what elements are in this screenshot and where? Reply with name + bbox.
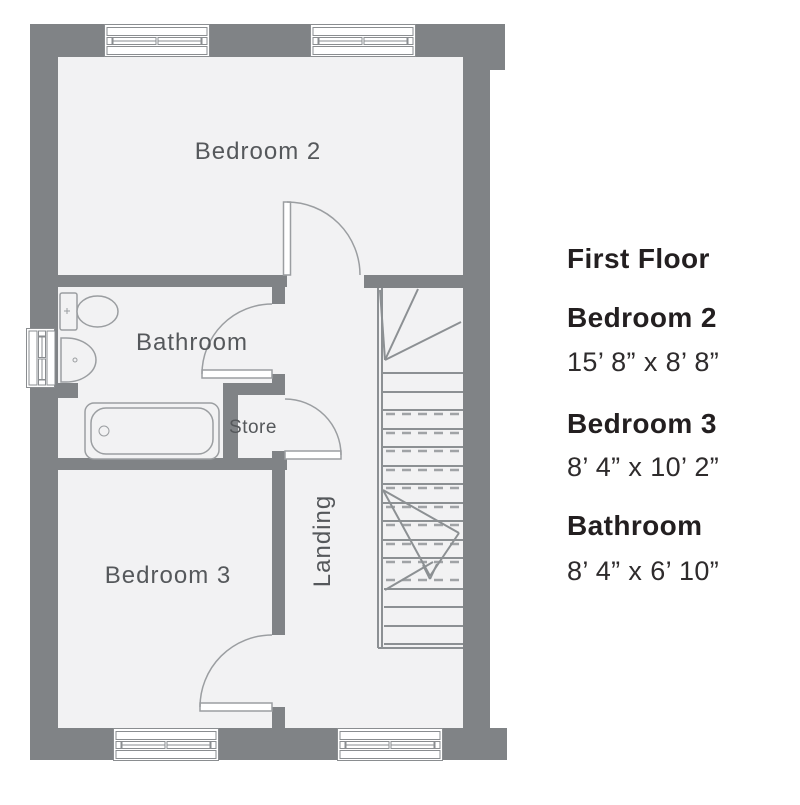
- legend-bedroom2-name: Bedroom 2: [567, 302, 717, 334]
- label-bedroom2: Bedroom 2: [195, 138, 321, 165]
- label-bathroom: Bathroom: [136, 329, 248, 356]
- toilet: [60, 293, 118, 330]
- wall-left: [30, 24, 58, 760]
- window-bottom-1: [114, 729, 219, 761]
- legend-title: First Floor: [567, 243, 710, 275]
- wall-bedroom2-stairs: [364, 275, 463, 288]
- wall-right: [463, 70, 490, 728]
- legend-bedroom2-dimensions: 15’ 8” x 8’ 8”: [567, 347, 719, 378]
- label-landing: Landing: [309, 495, 336, 587]
- window-bottom-2: [338, 729, 443, 761]
- window-top-1: [105, 25, 210, 57]
- wall-bedroom2-bathroom: [58, 275, 287, 287]
- bath: [85, 403, 219, 459]
- label-bedroom3: Bedroom 3: [105, 562, 231, 589]
- wall-top-right-step: [463, 57, 505, 70]
- wall-bathroom-landing-stub: [272, 287, 285, 304]
- window-left: [27, 329, 56, 388]
- wall-top: [30, 24, 505, 57]
- wall-bedroom3-landing: [272, 470, 285, 635]
- legend: First Floor Bedroom 2 15’ 8” x 8’ 8” Bed…: [567, 0, 797, 800]
- wall-bath-alcove-stub: [58, 383, 78, 398]
- legend-bathroom-dimensions: 8’ 4” x 6’ 10”: [567, 556, 719, 587]
- legend-bedroom3-name: Bedroom 3: [567, 408, 717, 440]
- label-store: Store: [229, 417, 277, 438]
- wall-bedroom3-door-stub: [272, 707, 285, 728]
- floorplan-image: Bedroom 2 Bathroom Store Bedroom 3 Landi…: [0, 0, 800, 800]
- window-top-2: [311, 25, 416, 57]
- legend-bathroom-name: Bathroom: [567, 510, 702, 542]
- legend-bedroom3-dimensions: 8’ 4” x 10’ 2”: [567, 452, 719, 483]
- wall-bedroom3-top: [30, 458, 287, 470]
- wall-store-door-stub: [272, 451, 285, 459]
